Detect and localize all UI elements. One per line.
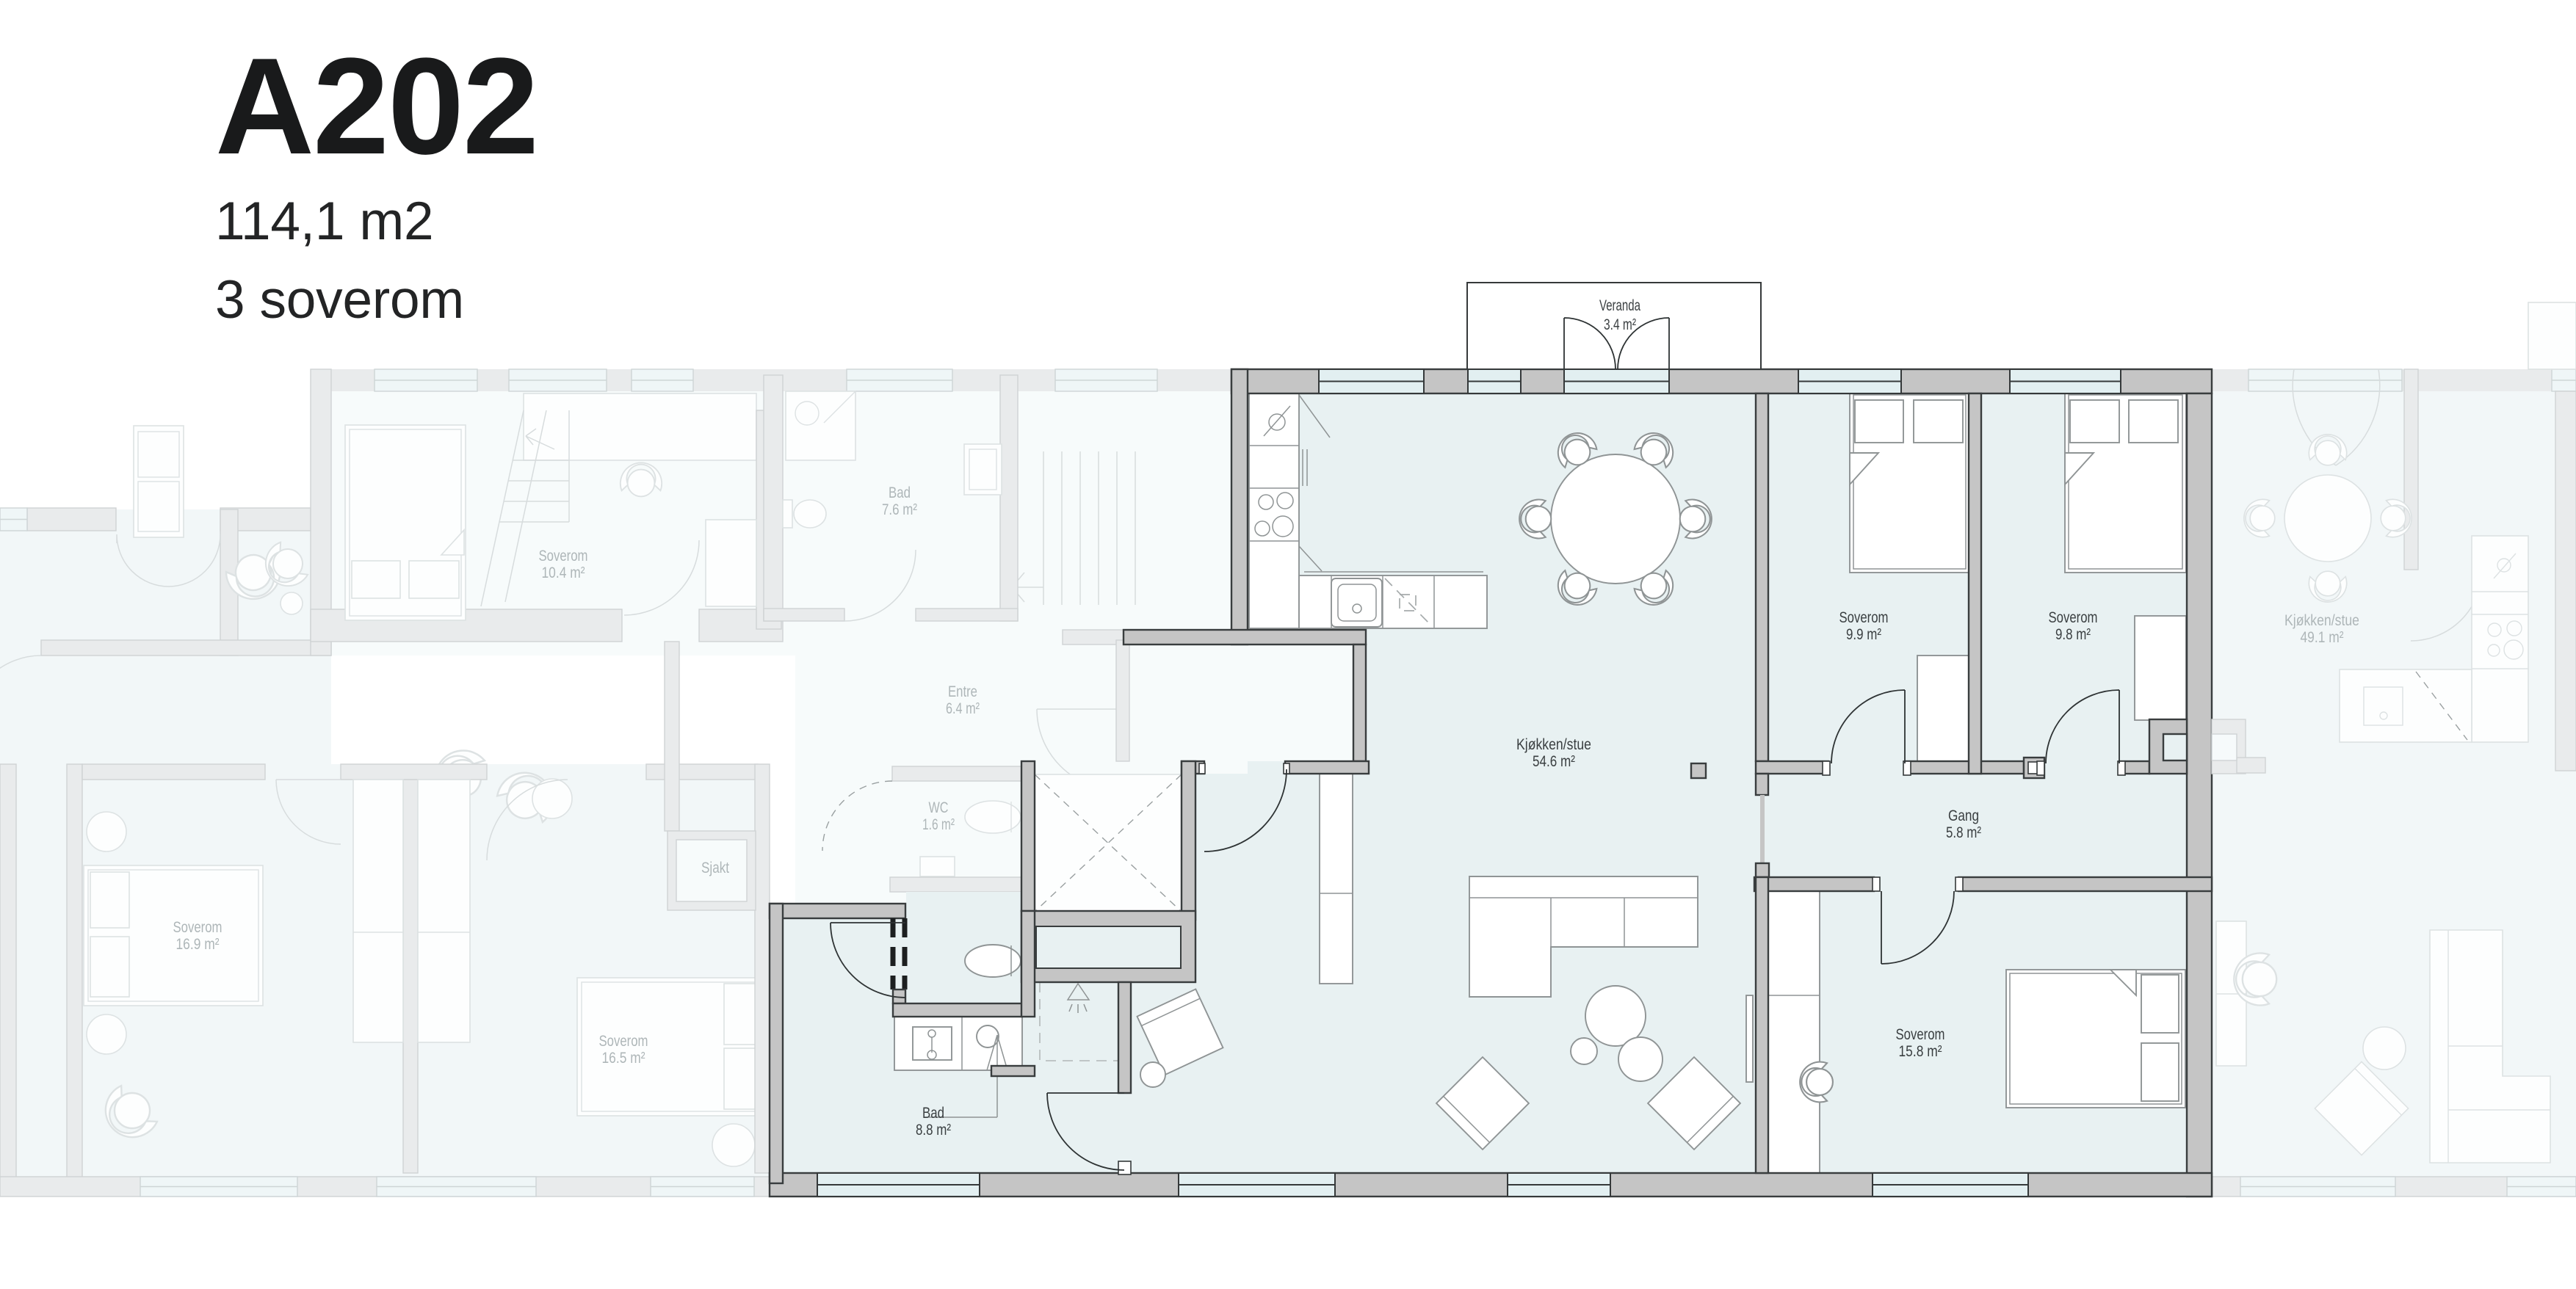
svg-text:16.5 m²: 16.5 m²: [602, 1050, 645, 1067]
svg-text:3.4 m²: 3.4 m²: [1604, 316, 1636, 333]
svg-text:9.8 m²: 9.8 m²: [2055, 626, 2091, 643]
svg-text:Bad: Bad: [922, 1105, 944, 1122]
svg-text:Veranda: Veranda: [1599, 297, 1640, 314]
svg-text:Soverom: Soverom: [1839, 609, 1889, 626]
svg-text:15.8 m²: 15.8 m²: [1899, 1043, 1942, 1060]
svg-text:8.8 m²: 8.8 m²: [916, 1122, 951, 1139]
svg-text:Soverom: Soverom: [2049, 609, 2098, 626]
svg-text:Kjøkken/stue: Kjøkken/stue: [1516, 736, 1591, 753]
svg-text:1.6 m²: 1.6 m²: [922, 816, 955, 833]
svg-text:114,1 m2: 114,1 m2: [215, 192, 433, 251]
svg-text:Soverom: Soverom: [1896, 1026, 1945, 1043]
svg-text:Kjøkken/stue: Kjøkken/stue: [2284, 612, 2359, 629]
svg-text:Bad: Bad: [889, 484, 911, 501]
svg-text:Sjakt: Sjakt: [701, 860, 729, 876]
svg-text:7.6 m²: 7.6 m²: [882, 501, 917, 518]
svg-text:49.1 m²: 49.1 m²: [2301, 629, 2344, 646]
svg-text:10.4 m²: 10.4 m²: [542, 564, 585, 581]
svg-text:Soverom: Soverom: [599, 1033, 648, 1050]
svg-text:54.6 m²: 54.6 m²: [1533, 753, 1575, 770]
svg-text:A202: A202: [215, 29, 538, 183]
svg-text:WC: WC: [929, 799, 949, 816]
svg-text:Entre: Entre: [948, 683, 977, 700]
svg-text:Soverom: Soverom: [539, 548, 588, 564]
svg-text:6.4 m²: 6.4 m²: [946, 700, 980, 717]
svg-text:16.9 m²: 16.9 m²: [176, 936, 220, 953]
svg-text:Gang: Gang: [1948, 807, 1979, 824]
svg-text:9.9 m²: 9.9 m²: [1846, 626, 1881, 643]
svg-text:Soverom: Soverom: [173, 919, 222, 936]
svg-text:5.8 m²: 5.8 m²: [1946, 824, 1981, 841]
svg-text:3 soverom: 3 soverom: [215, 270, 464, 330]
